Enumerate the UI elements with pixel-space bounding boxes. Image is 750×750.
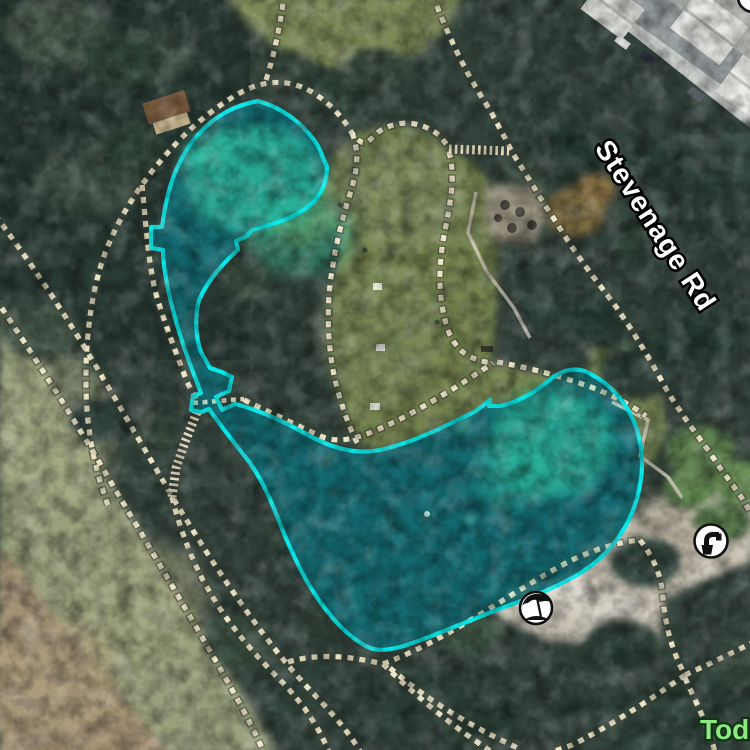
poi-label[interactable]: Todd xyxy=(700,714,750,745)
photo-grain-light xyxy=(0,0,750,750)
map-canvas[interactable]: Stevenage Rd Todd xyxy=(0,0,750,750)
beach-umbrella-icon[interactable] xyxy=(520,592,552,624)
drinking-water-icon[interactable] xyxy=(695,525,728,558)
